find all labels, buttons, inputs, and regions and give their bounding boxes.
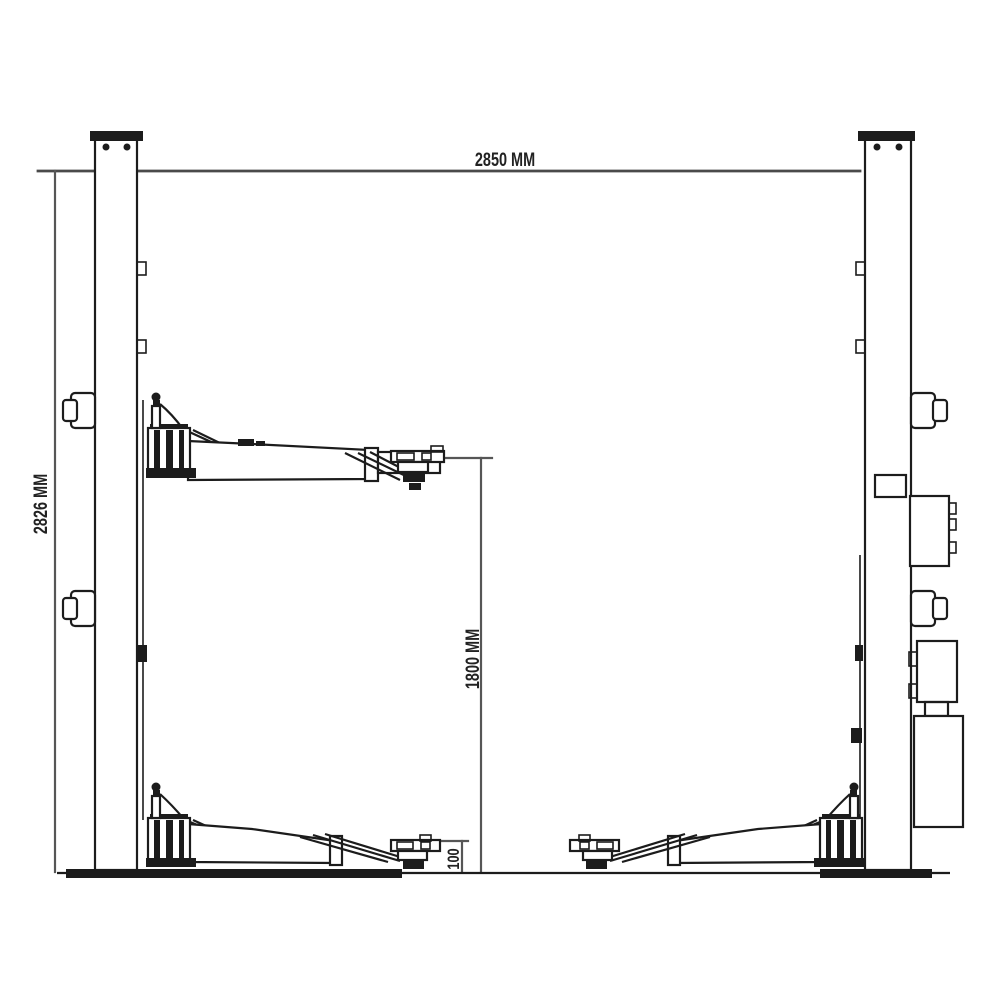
right-post-column — [865, 139, 911, 870]
lock-knob — [152, 393, 161, 402]
dimension-lines — [38, 171, 860, 872]
pad-foot — [403, 860, 424, 869]
base-plate-right — [820, 869, 932, 878]
right-post — [851, 131, 963, 870]
left-post-bracket-upper — [63, 393, 95, 428]
two-post-lift-diagram: 2850 MM 2826 MM 1800 MM 100 — [0, 0, 1000, 1000]
lower-left-arm — [146, 783, 440, 870]
motor-unit — [909, 641, 963, 827]
left-post-latch — [137, 262, 146, 275]
bracket-inner — [63, 598, 77, 619]
arm-boom — [188, 824, 335, 863]
control-box — [910, 496, 956, 566]
carriage-stripe — [154, 820, 160, 860]
dim-height-label: 2826 MM — [30, 474, 51, 534]
right-post-bolt — [874, 144, 881, 151]
left-post-bracket-lower — [63, 591, 95, 626]
left-post-bolt — [124, 144, 131, 151]
boom-plate — [238, 439, 254, 446]
right-post-bracket-lower — [911, 591, 947, 626]
dim-pad-height-label: 100 — [445, 848, 463, 869]
pad-tab — [409, 483, 421, 490]
connector-block — [925, 702, 948, 716]
carriage-stripe — [166, 430, 173, 470]
carriage-stripe — [166, 820, 173, 860]
right-post-latch — [856, 262, 865, 275]
left-post-lock-block — [137, 645, 147, 662]
carriage-band — [146, 858, 196, 867]
control-box-body — [910, 496, 949, 566]
right-post-cap — [858, 131, 915, 141]
dim-width-label: 2850 MM — [475, 149, 535, 170]
right-post-lock-block — [851, 728, 862, 743]
pad-foot — [403, 472, 425, 482]
right-post-bracket-upper — [911, 393, 947, 428]
lock-rod — [152, 406, 160, 428]
lower-right-arm — [570, 783, 864, 870]
left-post-cap — [90, 131, 143, 141]
base — [57, 869, 950, 878]
motor-box — [917, 641, 957, 702]
carriage-stripe — [179, 820, 184, 860]
boom-plate — [256, 441, 265, 446]
left-post-bolt — [103, 144, 110, 151]
bracket-outer — [911, 393, 935, 428]
lock-rod — [152, 796, 160, 818]
power-unit — [914, 716, 963, 827]
right-post-lock-block — [855, 645, 863, 661]
pad-riser — [398, 462, 428, 472]
left-post-latch — [137, 340, 146, 353]
bracket-inner — [933, 598, 947, 619]
carriage-stripe — [154, 430, 160, 470]
bracket-inner — [933, 400, 947, 421]
base-plate-left — [66, 869, 402, 878]
upper-left-arm — [146, 393, 444, 491]
dim-lift-height-label: 1800 MM — [462, 629, 483, 689]
carriage-band — [146, 468, 196, 478]
arm-boom — [188, 441, 370, 480]
bracket-inner — [63, 400, 77, 421]
lock-knob — [152, 783, 161, 792]
bracket-outer — [911, 591, 935, 626]
left-post — [63, 131, 147, 870]
left-post-column — [95, 139, 137, 870]
pad-riser — [398, 851, 427, 860]
carriage-stripe — [179, 430, 184, 470]
right-post-latch — [856, 340, 865, 353]
right-post-bolt — [896, 144, 903, 151]
